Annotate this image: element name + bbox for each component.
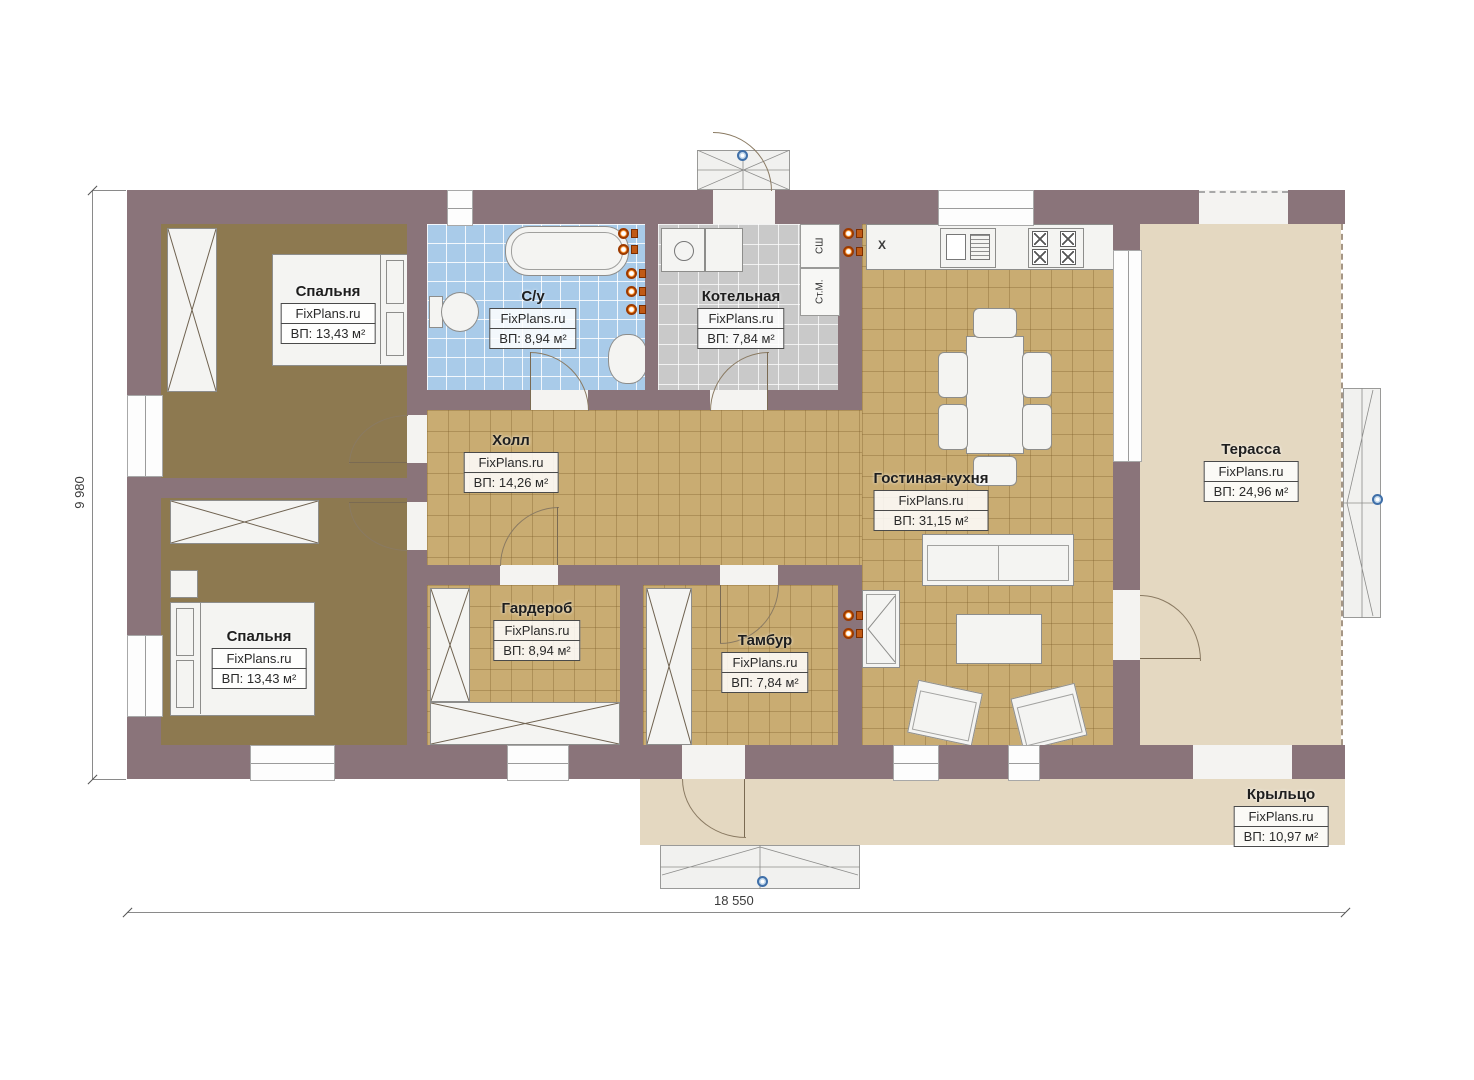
wall-bath-hall xyxy=(588,390,710,410)
wall-bottom xyxy=(333,745,507,779)
room-label-wardrobe: Гардероб FixPlans.ru ВП: 8,94 м² xyxy=(493,600,580,661)
dim-ext xyxy=(92,779,126,780)
bed-line xyxy=(200,602,201,714)
room-name: Котельная xyxy=(697,288,784,305)
nightstand xyxy=(170,570,198,598)
wall-bedroom-right xyxy=(407,550,427,745)
room-label-hall: Холл FixPlans.ru ВП: 14,26 м² xyxy=(464,432,559,493)
stove-burner-icon xyxy=(1032,249,1048,265)
pillow xyxy=(176,608,194,656)
radiator-icon xyxy=(618,228,638,239)
room-area: ВП: 31,15 м² xyxy=(874,510,989,531)
door-leaf-wardrobe xyxy=(557,507,558,565)
room-label-bedroom-top: Спальня FixPlans.ru ВП: 13,43 м² xyxy=(281,283,376,344)
wall-bottom xyxy=(1292,745,1345,779)
radiator-icon xyxy=(843,628,863,639)
wall-vestibule-living xyxy=(838,565,862,745)
radiator-icon xyxy=(843,246,863,257)
door-gap-entrance-top xyxy=(713,190,775,224)
wall-bath-hall xyxy=(427,390,530,410)
chair xyxy=(938,404,968,450)
wall-hall-wardrobe xyxy=(427,565,500,585)
room-label-porch: Крыльцо FixPlans.ru ВП: 10,97 м² xyxy=(1234,786,1329,847)
door-gap-bedroom-top xyxy=(407,415,427,463)
closet-stm-text: Ст.М. xyxy=(815,280,826,305)
window-living-2 xyxy=(1008,745,1040,781)
floor-plan-canvas: СШ Ст.М. X xyxy=(0,0,1474,1080)
room-label-bathroom: С/у FixPlans.ru ВП: 8,94 м² xyxy=(489,288,576,349)
room-area: ВП: 7,84 м² xyxy=(697,328,784,349)
wall-bottom xyxy=(937,745,1008,779)
closet xyxy=(430,702,620,745)
wall-bath-boiler xyxy=(645,224,658,410)
closet xyxy=(167,228,217,392)
room-area: ВП: 8,94 м² xyxy=(493,640,580,661)
stove-burner-icon xyxy=(1060,249,1076,265)
window-bedroom-bottom xyxy=(250,745,335,781)
coffee-table xyxy=(956,614,1042,664)
stove-burner-icon xyxy=(1060,231,1076,247)
closet xyxy=(430,588,470,702)
boiler-counter xyxy=(705,228,743,272)
wall-top xyxy=(471,190,713,224)
chair xyxy=(973,308,1017,338)
terrace-top-opening-edge xyxy=(1199,191,1288,193)
marker-dot xyxy=(1372,494,1383,505)
radiator-icon xyxy=(843,610,863,621)
watermark: FixPlans.ru xyxy=(464,452,559,473)
watermark: FixPlans.ru xyxy=(281,303,376,324)
wall-wardrobe-vestibule xyxy=(620,585,643,745)
closet-sh-text: СШ xyxy=(815,238,826,254)
room-name: Холл xyxy=(464,432,559,449)
radiator-icon xyxy=(618,244,638,255)
marker-dot xyxy=(757,876,768,887)
watermark: FixPlans.ru xyxy=(1234,806,1329,827)
wall-top xyxy=(775,190,938,224)
radiator-icon xyxy=(626,286,646,297)
door-leaf-terrace xyxy=(1140,658,1200,659)
toilet-icon xyxy=(441,292,479,332)
room-label-bedroom-bottom: Спальня FixPlans.ru ВП: 13,43 м² xyxy=(212,628,307,689)
pillow xyxy=(386,312,404,356)
room-area: ВП: 13,43 м² xyxy=(281,323,376,344)
room-name: Спальня xyxy=(212,628,307,645)
closet-sh-label: СШ xyxy=(800,224,840,268)
watermark: FixPlans.ru xyxy=(212,648,307,669)
sink-drainer xyxy=(970,234,990,260)
dim-height-label: 9 980 xyxy=(72,476,87,509)
room-name: Гардероб xyxy=(493,600,580,617)
room-area: ВП: 24,96 м² xyxy=(1204,481,1299,502)
watermark: FixPlans.ru xyxy=(721,652,808,673)
watermark: FixPlans.ru xyxy=(874,490,989,511)
wall-right-main xyxy=(1113,224,1140,250)
wall-left xyxy=(127,190,161,395)
room-label-living-kitchen: Гостиная-кухня FixPlans.ru ВП: 31,15 м² xyxy=(874,470,989,531)
door-gap-vestibule xyxy=(720,565,778,585)
window-wardrobe xyxy=(507,745,569,781)
closet xyxy=(170,500,319,544)
radiator-icon xyxy=(843,228,863,239)
dim-ext xyxy=(92,190,126,191)
wall-hall-wardrobe xyxy=(778,565,838,585)
wall-hall-wardrobe xyxy=(558,565,720,585)
room-name: Крыльцо xyxy=(1234,786,1329,803)
wall-top xyxy=(127,190,447,224)
door-gap-porch xyxy=(682,745,745,779)
dim-width-label: 18 550 xyxy=(714,893,754,908)
chair xyxy=(938,352,968,398)
wall-bath-hall xyxy=(768,390,838,410)
wall-bottom xyxy=(127,745,250,779)
dim-line-horizontal xyxy=(127,912,1345,913)
wall-bedroom-right xyxy=(407,224,427,415)
door-gap-bedroom-bottom xyxy=(407,502,427,550)
washing-machine-icon xyxy=(661,228,705,272)
watermark: FixPlans.ru xyxy=(489,308,576,329)
door-gap-terrace xyxy=(1113,590,1140,660)
room-area: ВП: 7,84 м² xyxy=(721,672,808,693)
wall-bottom xyxy=(567,745,682,779)
sink-bowl xyxy=(946,234,966,260)
watermark: FixPlans.ru xyxy=(493,620,580,641)
room-label-vestibule: Тамбур FixPlans.ru ВП: 7,84 м² xyxy=(721,632,808,693)
door-leaf-bathroom xyxy=(530,352,531,410)
bathtub xyxy=(505,226,629,276)
room-area: ВП: 13,43 м² xyxy=(212,668,307,689)
wall-top xyxy=(1032,190,1199,224)
room-area: ВП: 10,97 м² xyxy=(1234,826,1329,847)
door-leaf-bedroom-bottom xyxy=(349,502,407,503)
chair xyxy=(1022,404,1052,450)
room-label-boiler: Котельная FixPlans.ru ВП: 7,84 м² xyxy=(697,288,784,349)
door-leaf-boiler xyxy=(767,352,768,410)
watermark: FixPlans.ru xyxy=(1204,461,1299,482)
wall-bottom xyxy=(745,745,893,779)
sofa xyxy=(922,534,1074,586)
window-living-1 xyxy=(893,745,939,781)
bed-line xyxy=(380,254,381,364)
window-living-terrace xyxy=(1113,250,1142,462)
opening-hall-living xyxy=(838,410,862,565)
window-top-small xyxy=(447,190,473,226)
terrace-top-opening xyxy=(1199,190,1288,224)
wall-top xyxy=(1288,190,1345,224)
fireplace-icon xyxy=(862,590,900,668)
sink-icon xyxy=(608,334,648,384)
window-kitchen xyxy=(938,190,1034,226)
room-name: Гостиная-кухня xyxy=(874,470,989,487)
radiator-icon xyxy=(626,304,646,315)
pillow xyxy=(176,660,194,708)
room-name: Тамбур xyxy=(721,632,808,649)
room-name: Терасса xyxy=(1204,441,1299,458)
window-left-bottom xyxy=(127,635,163,717)
wall-right-main xyxy=(1113,660,1140,745)
room-name: С/у xyxy=(489,288,576,305)
door-leaf-bedroom-top xyxy=(349,462,407,463)
pillow xyxy=(386,260,404,304)
wall-bedroom-right xyxy=(407,463,427,502)
room-area: ВП: 8,94 м² xyxy=(489,328,576,349)
wall-bottom xyxy=(1038,745,1193,779)
dining-table xyxy=(966,336,1024,454)
marker-dot xyxy=(737,150,748,161)
closet xyxy=(646,588,692,745)
door-arc-entrance xyxy=(713,132,772,191)
door-leaf-porch xyxy=(744,779,745,837)
door-gap-wardrobe xyxy=(500,565,558,585)
radiator-icon xyxy=(626,268,646,279)
room-label-terrace: Терасса FixPlans.ru ВП: 24,96 м² xyxy=(1204,441,1299,502)
wall-bedroom-divider xyxy=(161,478,407,498)
wall-right-main xyxy=(1113,460,1140,590)
watermark: FixPlans.ru xyxy=(697,308,784,329)
kitchen-x-marker: X xyxy=(878,238,886,252)
dim-line-vertical xyxy=(92,190,93,780)
closet-stm-label: Ст.М. xyxy=(800,268,840,316)
stove-burner-icon xyxy=(1032,231,1048,247)
terrace-porch-opening xyxy=(1193,745,1292,779)
wall-left xyxy=(127,475,161,635)
window-left-top xyxy=(127,395,163,477)
room-area: ВП: 14,26 м² xyxy=(464,472,559,493)
chair xyxy=(1022,352,1052,398)
room-name: Спальня xyxy=(281,283,376,300)
